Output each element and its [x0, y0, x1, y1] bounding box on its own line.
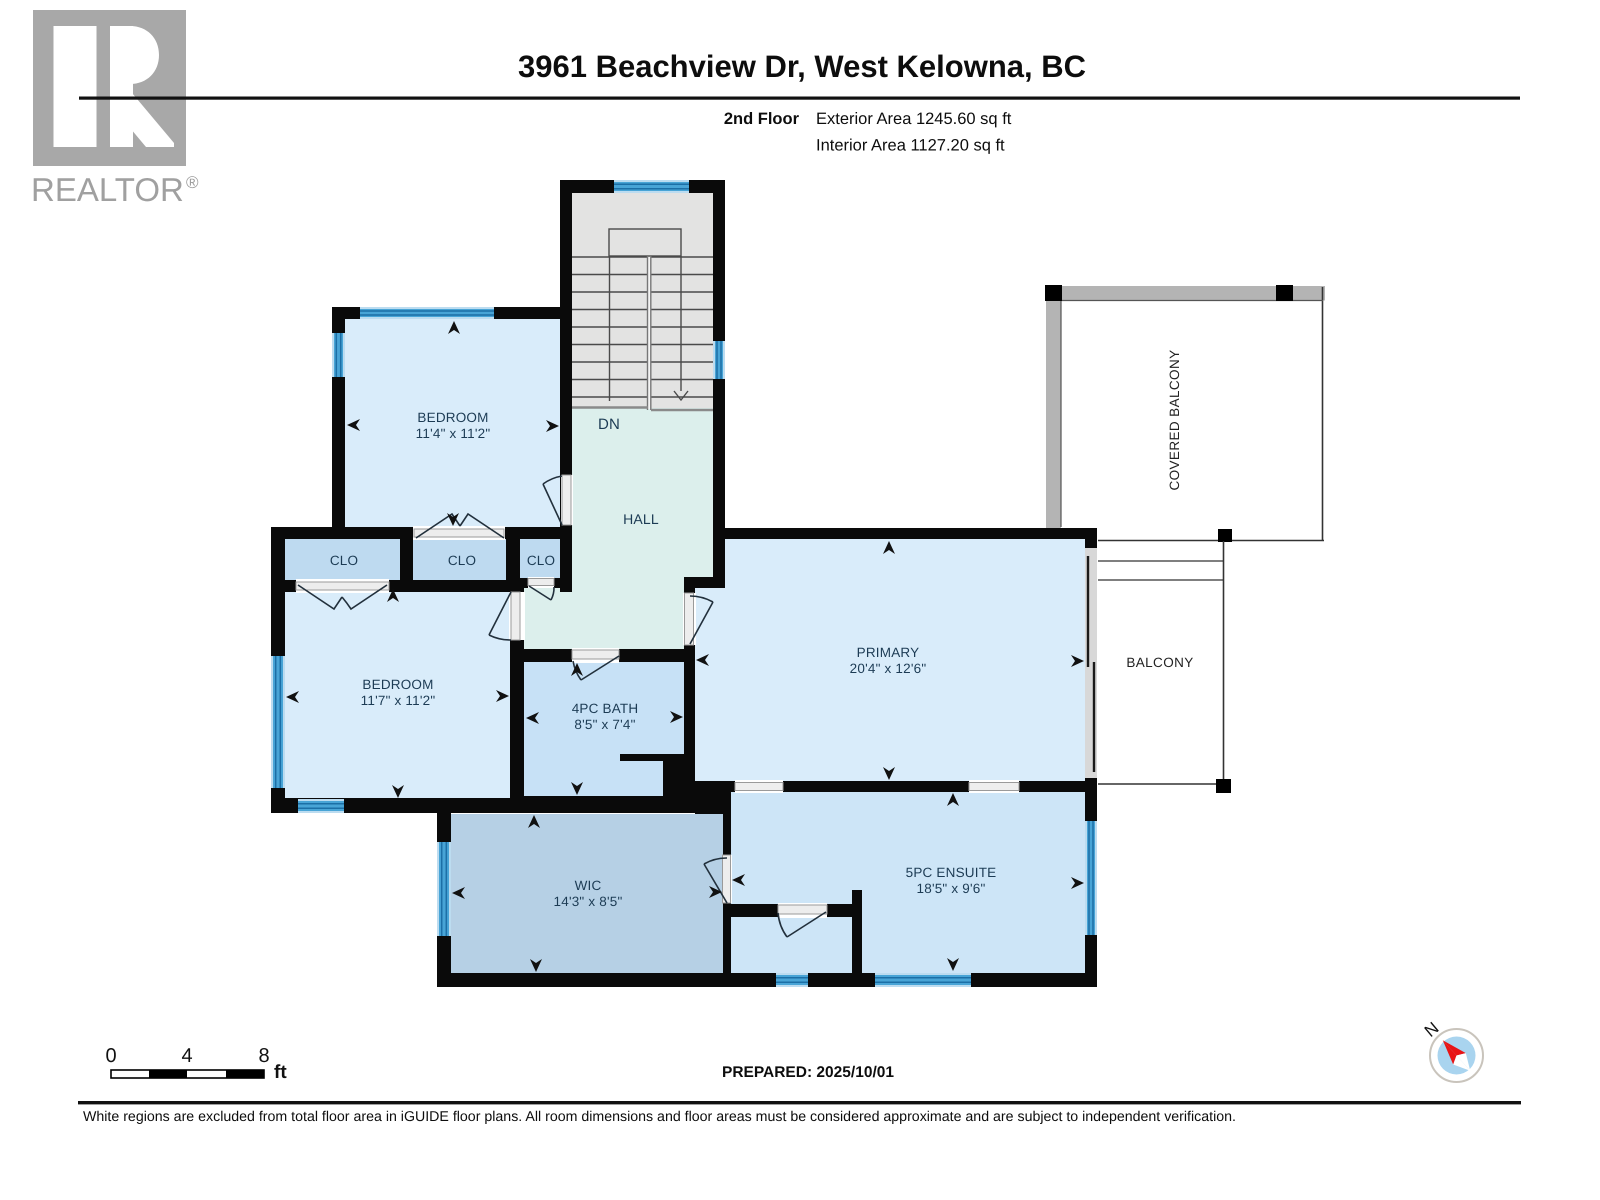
svg-text:3961 Beachview Dr, West Kelown: 3961 Beachview Dr, West Kelowna, BC: [518, 49, 1086, 84]
svg-text:®: ®: [186, 173, 199, 192]
svg-text:Exterior Area 1245.60 sq ft: Exterior Area 1245.60 sq ft: [816, 110, 1012, 128]
svg-text:PRIMARY: PRIMARY: [857, 645, 920, 660]
svg-text:White regions are excluded fro: White regions are excluded from total fl…: [83, 1109, 1236, 1125]
svg-text:8: 8: [258, 1045, 269, 1067]
svg-text:WIC: WIC: [575, 878, 602, 893]
svg-text:BEDROOM: BEDROOM: [417, 410, 488, 425]
svg-text:11'4" x 11'2": 11'4" x 11'2": [416, 426, 491, 441]
svg-text:5PC ENSUITE: 5PC ENSUITE: [906, 865, 997, 880]
svg-text:11'7" x 11'2": 11'7" x 11'2": [361, 693, 436, 708]
svg-text:4: 4: [181, 1045, 192, 1067]
svg-text:Interior Area 1127.20 sq ft: Interior Area 1127.20 sq ft: [816, 137, 1005, 155]
svg-text:BALCONY: BALCONY: [1126, 655, 1193, 670]
svg-text:COVERED BALCONY: COVERED BALCONY: [1167, 349, 1182, 490]
svg-text:18'5" x 9'6": 18'5" x 9'6": [917, 881, 986, 896]
svg-text:PREPARED: 2025/10/01: PREPARED: 2025/10/01: [722, 1064, 894, 1081]
svg-text:CLO: CLO: [448, 553, 476, 568]
svg-text:20'4" x 12'6": 20'4" x 12'6": [850, 661, 927, 676]
svg-text:CLO: CLO: [527, 553, 555, 568]
svg-text:REALTOR: REALTOR: [31, 171, 184, 208]
svg-text:4PC BATH: 4PC BATH: [572, 701, 639, 716]
svg-text:2nd Floor: 2nd Floor: [724, 110, 800, 128]
svg-text:CLO: CLO: [330, 553, 358, 568]
svg-text:0: 0: [105, 1045, 116, 1067]
svg-text:ft: ft: [274, 1062, 287, 1083]
svg-text:HALL: HALL: [623, 511, 659, 527]
svg-text:DN: DN: [598, 416, 620, 433]
svg-text:8'5" x 7'4": 8'5" x 7'4": [574, 717, 635, 732]
svg-text:BEDROOM: BEDROOM: [362, 677, 433, 692]
svg-text:14'3" x 8'5": 14'3" x 8'5": [554, 894, 623, 909]
